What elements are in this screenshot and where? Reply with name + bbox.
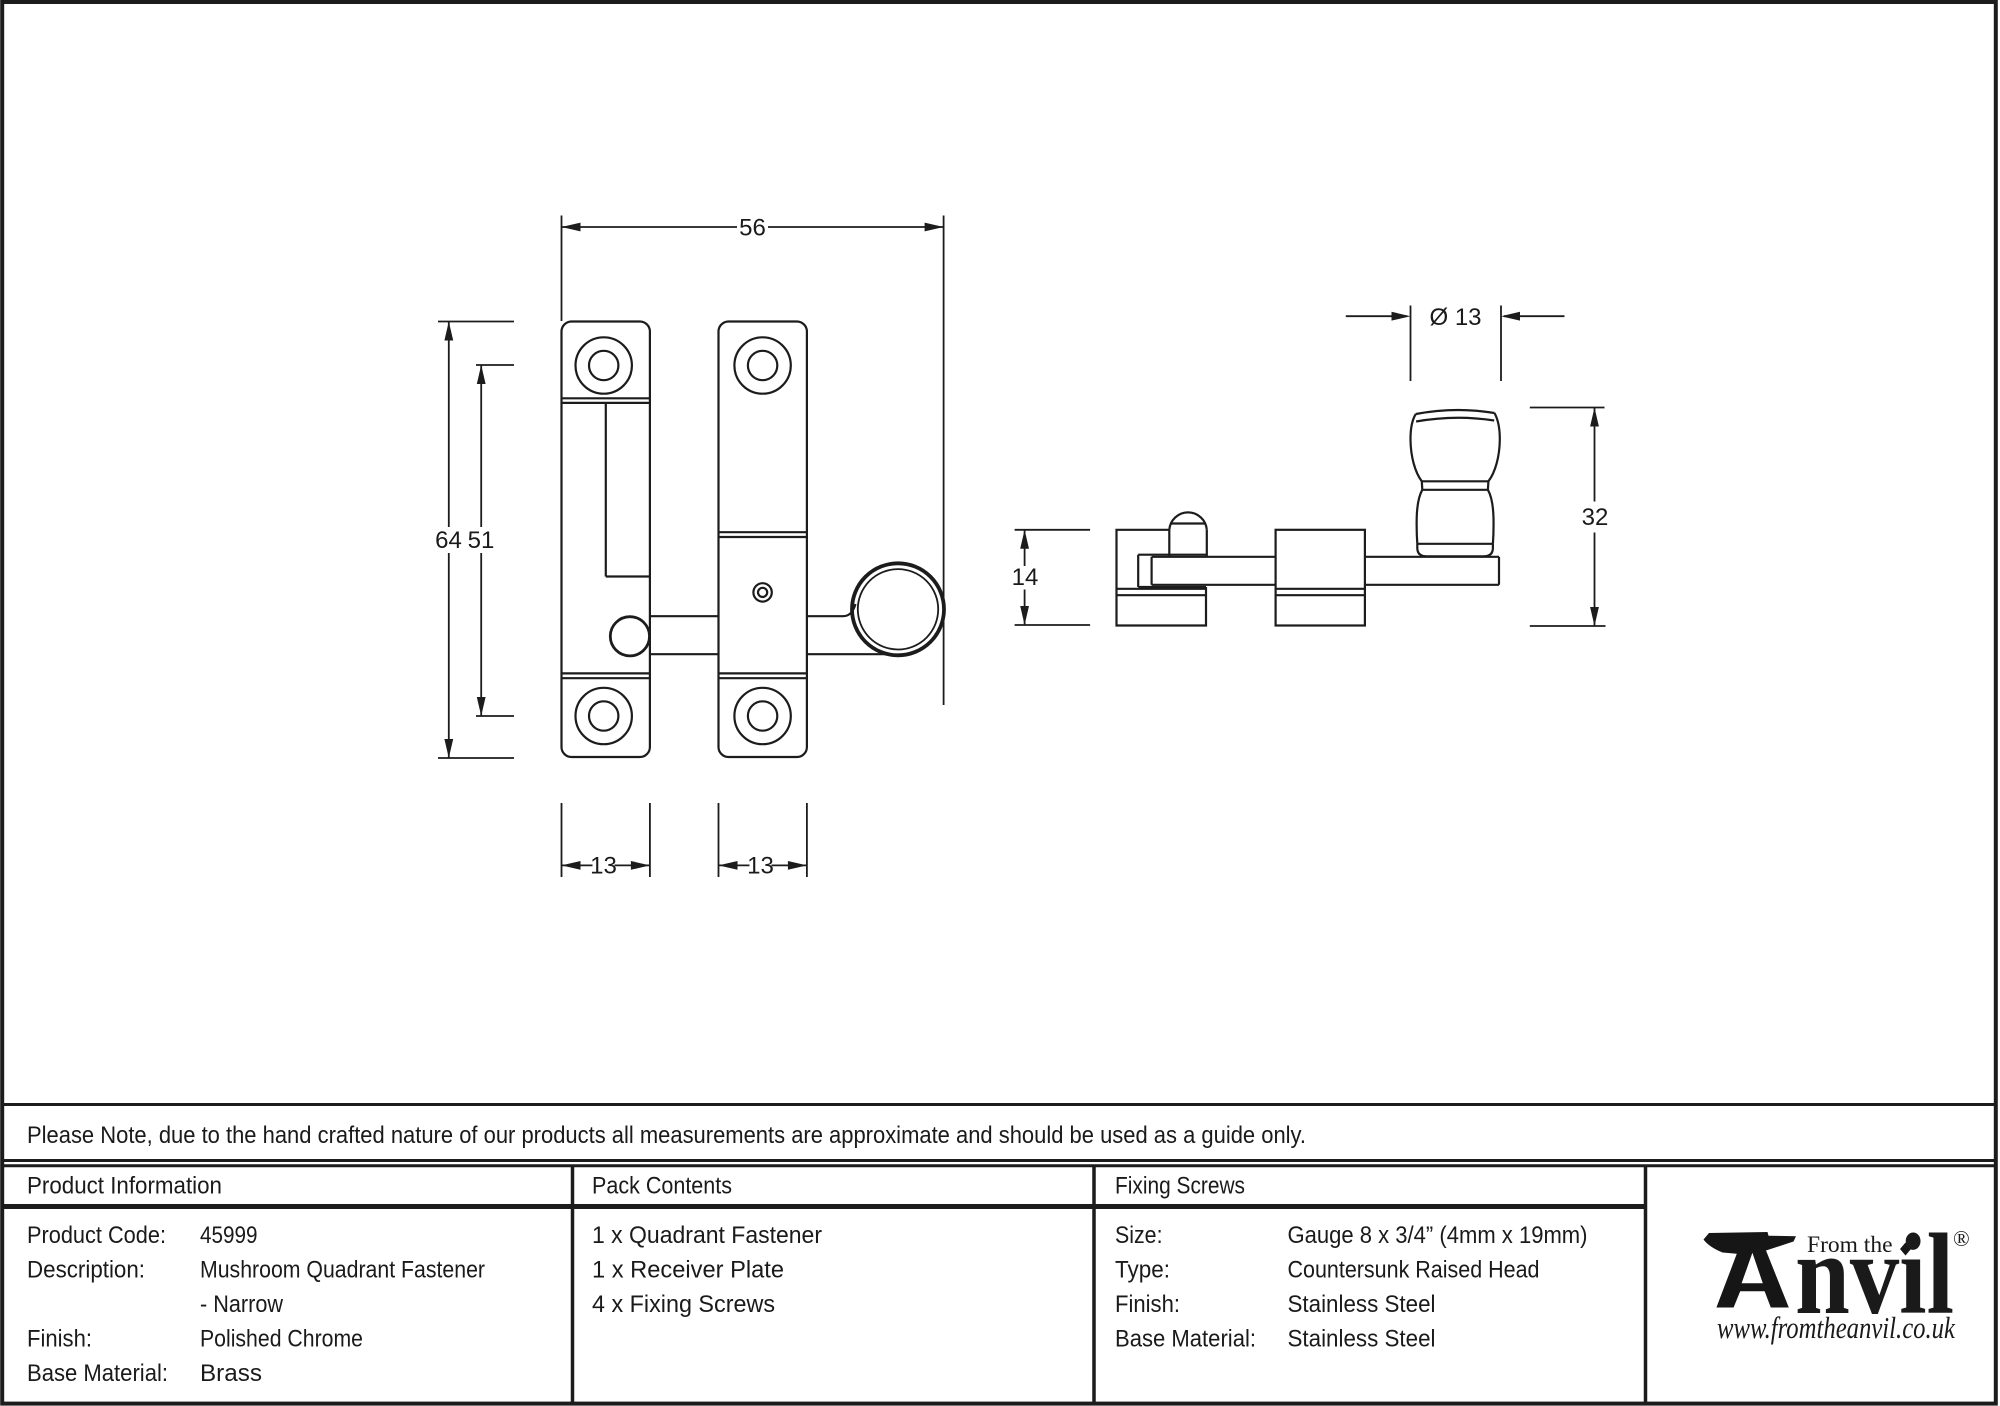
svg-text:Countersunk Raised Head: Countersunk Raised Head (1288, 1257, 1540, 1284)
svg-text:1 x Receiver Plate: 1 x Receiver Plate (592, 1257, 784, 1284)
svg-text:Ø 13: Ø 13 (1429, 304, 1481, 331)
svg-text:Type:: Type: (1115, 1257, 1170, 1284)
svg-text:Pack Contents: Pack Contents (592, 1173, 732, 1200)
svg-text:Finish:: Finish: (27, 1326, 92, 1353)
svg-text:Gauge 8 x 3/4” (4mm x 19mm): Gauge 8 x 3/4” (4mm x 19mm) (1288, 1222, 1588, 1249)
svg-text:Stainless Steel: Stainless Steel (1288, 1326, 1436, 1353)
svg-text:Finish:: Finish: (1115, 1291, 1180, 1318)
svg-text:32: 32 (1582, 504, 1609, 531)
svg-text:Please Note, due to the hand c: Please Note, due to the hand crafted nat… (27, 1122, 1306, 1149)
svg-text:Base Material:: Base Material: (27, 1360, 168, 1387)
svg-text:13: 13 (590, 853, 617, 880)
svg-text:Polished Chrome: Polished Chrome (200, 1326, 363, 1353)
svg-text:®: ® (1953, 1226, 1970, 1251)
svg-text:13: 13 (747, 853, 774, 880)
svg-text:Mushroom Quadrant Fastener: Mushroom Quadrant Fastener (200, 1257, 485, 1284)
svg-text:Description:: Description: (27, 1257, 145, 1284)
svg-text:45999: 45999 (200, 1222, 258, 1249)
svg-text:Brass: Brass (200, 1360, 262, 1387)
svg-text:4 x Fixing Screws: 4 x Fixing Screws (592, 1291, 775, 1318)
svg-text:1 x Quadrant Fastener: 1 x Quadrant Fastener (592, 1222, 822, 1249)
svg-text:64: 64 (435, 527, 462, 554)
svg-text:Size:: Size: (1115, 1222, 1163, 1249)
svg-text:56: 56 (739, 215, 766, 242)
svg-text:14: 14 (1012, 564, 1039, 591)
svg-text:Product Information: Product Information (27, 1173, 222, 1200)
svg-text:Fixing Screws: Fixing Screws (1115, 1173, 1245, 1200)
svg-text:www.fromtheanvil.co.uk: www.fromtheanvil.co.uk (1717, 1310, 1956, 1345)
svg-text:Product Code:: Product Code: (27, 1222, 166, 1249)
svg-text:Base Material:: Base Material: (1115, 1326, 1256, 1353)
svg-text:Stainless Steel: Stainless Steel (1288, 1291, 1436, 1318)
svg-text:51: 51 (468, 527, 495, 554)
svg-text:- Narrow: - Narrow (200, 1291, 283, 1318)
